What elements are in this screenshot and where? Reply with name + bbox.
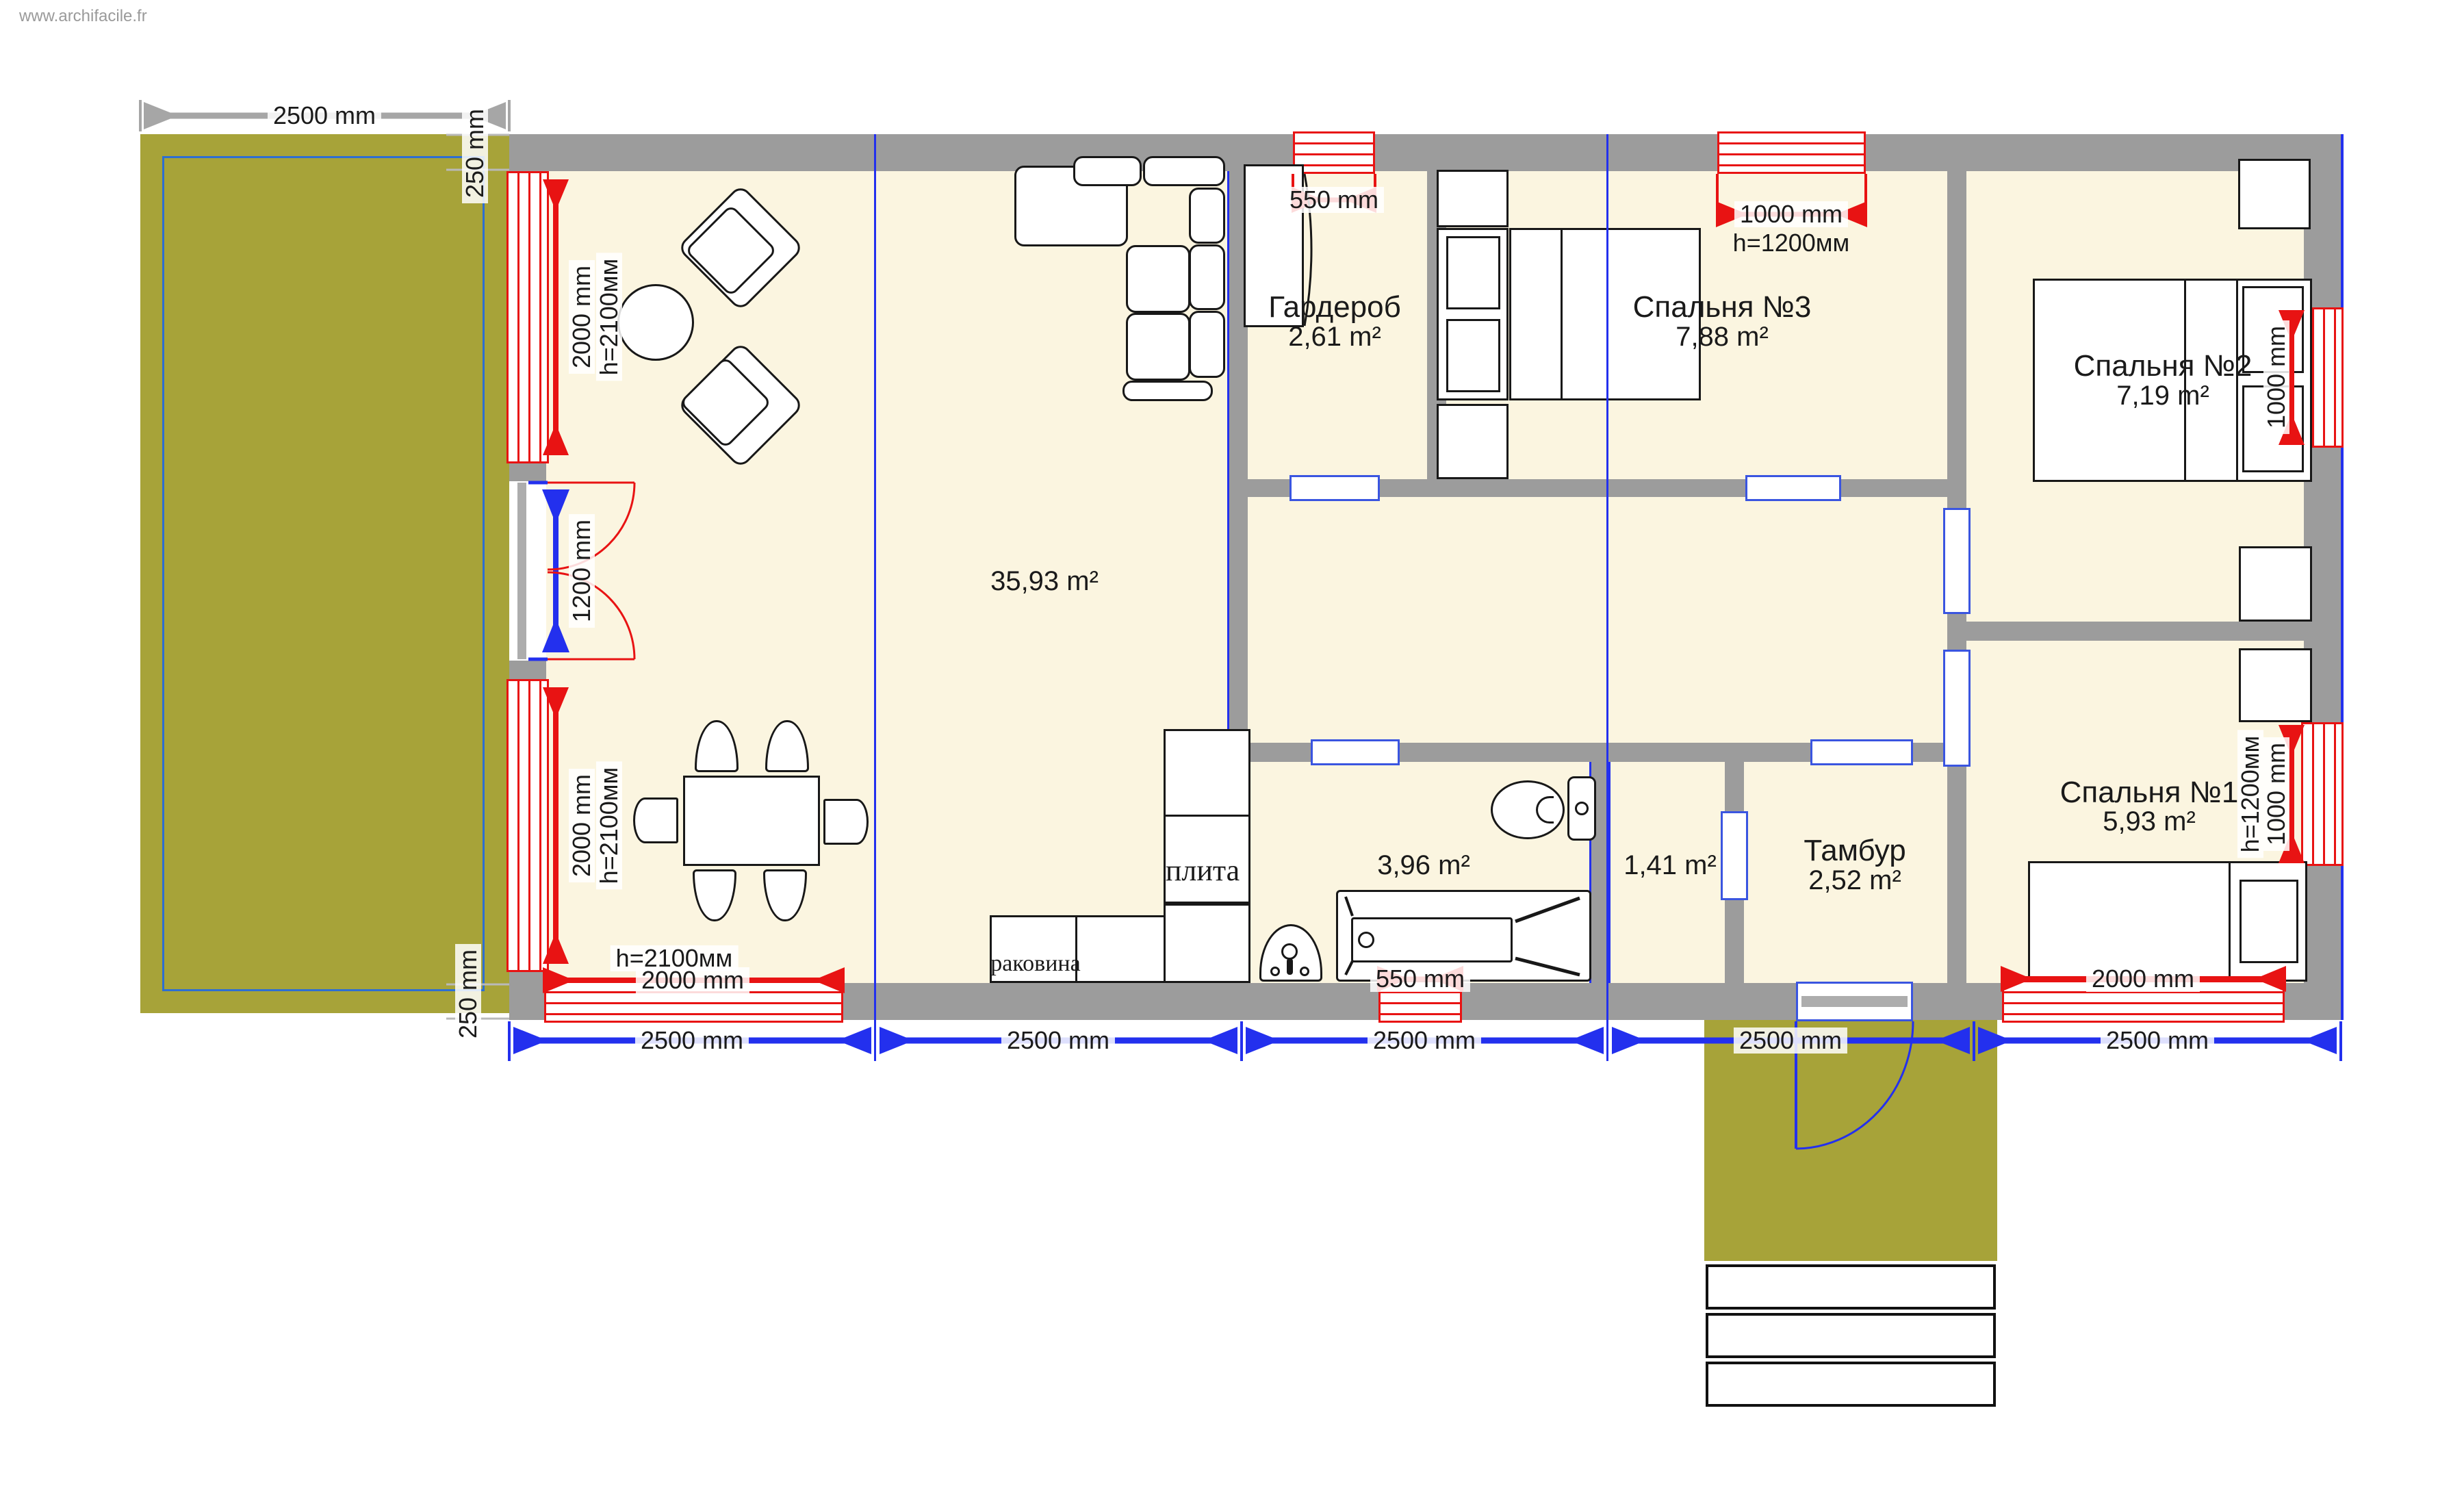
opening-wardrobe[interactable] bbox=[1289, 475, 1380, 501]
opening-bath[interactable] bbox=[1311, 739, 1400, 765]
dining-chair-right[interactable] bbox=[823, 799, 869, 845]
sofa-side-cushion-2[interactable] bbox=[1189, 244, 1225, 310]
bathtub-drain bbox=[1358, 932, 1374, 948]
bedroom3-cabinet[interactable] bbox=[1437, 404, 1509, 479]
bedroom3-wardrobe-door-1 bbox=[1446, 236, 1500, 309]
building-right-outline bbox=[2341, 134, 2344, 1020]
wall-thickness-dim-top[interactable]: 250 mm bbox=[462, 103, 488, 203]
window-bedroom1-right[interactable] bbox=[2301, 722, 2344, 866]
dining-chair-left[interactable] bbox=[633, 797, 678, 843]
opening-vestibule-top[interactable] bbox=[1810, 739, 1913, 765]
opening-wc-door[interactable] bbox=[1721, 811, 1748, 900]
sink-label[interactable]: раковина bbox=[990, 952, 1080, 975]
grid-dim-label-1[interactable]: 2500 mm bbox=[635, 1028, 749, 1054]
sofa-seat-low[interactable] bbox=[1126, 313, 1190, 381]
grid-guide-1 bbox=[874, 134, 876, 1061]
floor-plan-canvas: www.archifacile.fr bbox=[0, 0, 2464, 1506]
vestibule-area-label: 2,52 m² bbox=[1808, 867, 1901, 894]
cabinet-above-wall[interactable] bbox=[2239, 546, 2312, 622]
porch-step-3[interactable] bbox=[1706, 1362, 1996, 1407]
bathtub-inner bbox=[1351, 917, 1513, 962]
toilet-tank-button bbox=[1575, 802, 1589, 815]
grid-dim-label-3[interactable]: 2500 mm bbox=[1368, 1028, 1481, 1054]
bedroom2-name-label[interactable]: Спальня №2 bbox=[2074, 351, 2253, 381]
door-left-dim[interactable]: 1200 mm bbox=[569, 514, 595, 628]
window-left-1-height: h=2100мм bbox=[596, 253, 622, 381]
bedroom2-area-label: 7,19 m² bbox=[2116, 382, 2209, 409]
bedroom3-nightstand[interactable] bbox=[1437, 170, 1509, 227]
bedroom3-area-label: 7,88 m² bbox=[1676, 323, 1769, 350]
sofa-side-cushion-1[interactable] bbox=[1189, 188, 1225, 244]
kitchen-counter-2[interactable] bbox=[1075, 915, 1166, 983]
bedroom3-name-label[interactable]: Спальня №3 bbox=[1633, 292, 1812, 322]
sink-faucet bbox=[1281, 943, 1298, 960]
window-living-left-upper[interactable] bbox=[506, 171, 549, 463]
window-living-bottom-dim[interactable]: 2000 mm bbox=[636, 967, 749, 993]
sofa-seat-mid[interactable] bbox=[1126, 245, 1190, 313]
bedroom1-name-label[interactable]: Спальня №1 bbox=[2060, 778, 2239, 808]
watermark: www.archifacile.fr bbox=[19, 7, 147, 26]
sink-dot-right bbox=[1300, 967, 1309, 976]
window-left-2-height: h=2100мм bbox=[596, 762, 622, 890]
grid-dim-label-4[interactable]: 2500 mm bbox=[1734, 1028, 1847, 1054]
window-bedroom2-dim[interactable]: 1000 mm bbox=[2263, 320, 2289, 434]
bedroom2-nightstand-top[interactable] bbox=[2238, 159, 2311, 229]
wall-under-bedroom2[interactable] bbox=[1966, 622, 2304, 641]
sink-dot-left bbox=[1270, 967, 1280, 976]
wall-thickness-dim-bottom[interactable]: 250 mm bbox=[455, 944, 481, 1044]
vestibule-name-label[interactable]: Тамбур bbox=[1804, 836, 1905, 866]
window-left-1-dim[interactable]: 2000 mm bbox=[569, 260, 595, 374]
window-bedroom3-dim[interactable]: 1000 mm bbox=[1734, 201, 1848, 227]
room-outline-wc-left bbox=[1608, 762, 1610, 983]
window-bath-dim[interactable]: 550 mm bbox=[1370, 966, 1470, 992]
window-wardrobe-top[interactable] bbox=[1293, 131, 1375, 174]
door-terrace-opening[interactable] bbox=[509, 481, 546, 661]
door-terrace-leaf-bar bbox=[517, 483, 526, 659]
living-room-area-label[interactable]: 35,93 m² bbox=[990, 567, 1099, 595]
cabinet-below-wall[interactable] bbox=[2239, 648, 2312, 722]
window-bedroom3-height: h=1200мм bbox=[1733, 231, 1850, 255]
kitchen-tall-unit-top[interactable] bbox=[1164, 729, 1250, 817]
wardrobe-name-label[interactable]: Гардероб bbox=[1268, 292, 1401, 322]
dining-table[interactable] bbox=[683, 776, 820, 866]
window-bedroom1-right-height: h=1200мм bbox=[2237, 730, 2263, 858]
window-bedroom1-bottom-dim[interactable]: 2000 mm bbox=[2086, 966, 2200, 992]
grid-guide-2 bbox=[1606, 134, 1608, 1061]
wardrobe-area-label: 2,61 m² bbox=[1288, 323, 1381, 350]
bathroom-area-label[interactable]: 3,96 m² bbox=[1377, 852, 1470, 879]
wc-area-label[interactable]: 1,41 m² bbox=[1624, 852, 1717, 879]
sofa-back-cushion-2[interactable] bbox=[1143, 156, 1225, 186]
window-wardrobe-dim[interactable]: 550 mm bbox=[1284, 187, 1384, 213]
bedroom1-bed-line bbox=[2229, 863, 2231, 980]
window-bedroom1-right-dim[interactable]: 1000 mm bbox=[2263, 737, 2289, 851]
grid-dim-label-5[interactable]: 2500 mm bbox=[2101, 1028, 2214, 1054]
kitchen-tall-unit-bottom[interactable] bbox=[1164, 902, 1250, 983]
stove-label[interactable]: плита bbox=[1166, 856, 1240, 886]
opening-bedroom1-door[interactable] bbox=[1943, 650, 1971, 767]
porch-step-2[interactable] bbox=[1706, 1313, 1996, 1358]
window-bedroom3-top[interactable] bbox=[1717, 131, 1866, 174]
sofa-armrest[interactable] bbox=[1122, 381, 1213, 401]
opening-bedroom2-door[interactable] bbox=[1943, 508, 1971, 614]
porch-step-1[interactable] bbox=[1706, 1264, 1996, 1310]
terrace-width-dim[interactable]: 2500 mm bbox=[268, 103, 381, 129]
entrance-door-core bbox=[1801, 996, 1908, 1007]
round-table[interactable] bbox=[617, 284, 694, 361]
bedroom3-bed-headboard-line bbox=[1561, 230, 1563, 398]
sofa-back-cushion-1[interactable] bbox=[1073, 156, 1142, 186]
grid-dim-label-2[interactable]: 2500 mm bbox=[1001, 1028, 1115, 1054]
window-living-left-lower[interactable] bbox=[506, 679, 549, 972]
wall-top[interactable] bbox=[509, 134, 2341, 171]
opening-bedroom3[interactable] bbox=[1745, 475, 1841, 501]
bedroom1-area-label: 5,93 m² bbox=[2103, 808, 2196, 835]
bedroom1-pillow bbox=[2240, 880, 2298, 963]
bedroom3-wardrobe-door-2 bbox=[1446, 319, 1500, 392]
sink-stem bbox=[1287, 958, 1293, 975]
sofa-side-cushion-3[interactable] bbox=[1189, 311, 1225, 378]
porch[interactable] bbox=[1704, 1020, 1997, 1261]
terrace-inner-outline bbox=[162, 156, 485, 991]
window-left-2-dim[interactable]: 2000 mm bbox=[569, 769, 595, 882]
